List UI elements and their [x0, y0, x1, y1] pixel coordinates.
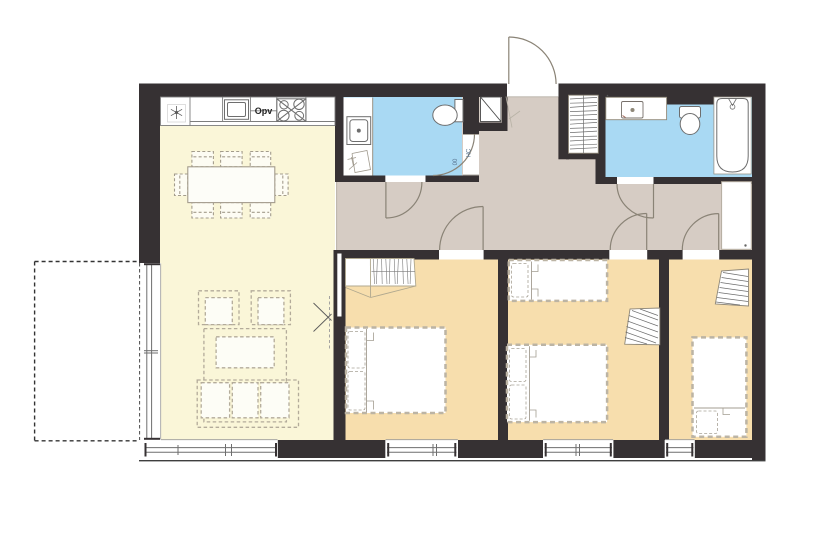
svg-text:HC: HC	[467, 148, 473, 157]
svg-text:Opv: Opv	[255, 106, 273, 116]
svg-text:00: 00	[453, 158, 459, 165]
